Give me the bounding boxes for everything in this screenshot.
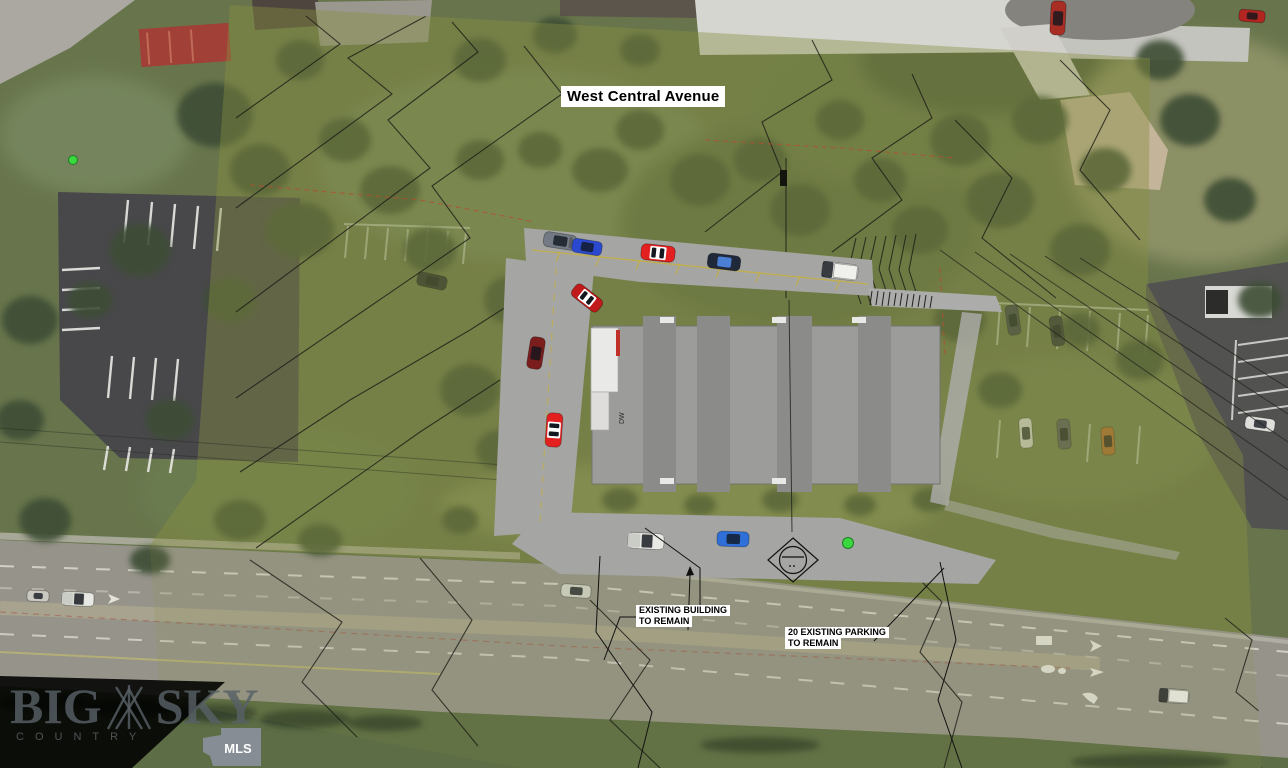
- roof-section-band: [697, 316, 730, 492]
- street-name-label: West Central Avenue: [561, 86, 725, 107]
- aerial-car-red: [1239, 9, 1266, 23]
- road-car-2: [27, 590, 50, 602]
- site-plan-screenshot: DW West Central Avenue EXISTING BUILDING…: [0, 0, 1288, 768]
- site-plan-map: DW: [0, 0, 1288, 768]
- annotation-line: TO REMAIN: [785, 638, 841, 649]
- annotation-line: TO REMAIN: [636, 616, 692, 627]
- building-shadow: [1206, 290, 1228, 314]
- pickup-white: [628, 532, 665, 550]
- car-blue-2: [717, 531, 750, 547]
- red-wall-accent: [616, 330, 620, 356]
- road-truck: [62, 591, 95, 607]
- car-red-vertical: [545, 412, 563, 447]
- roof-section-band: [858, 316, 891, 492]
- car-red-striped: [640, 243, 675, 262]
- building-interior-label: DW: [619, 412, 626, 424]
- post-marker: [780, 170, 787, 186]
- green-marker-west: [69, 156, 78, 165]
- annotation-existing-building: EXISTING BUILDING TO REMAIN: [636, 605, 730, 627]
- roof-section-band: [777, 316, 812, 492]
- green-marker-east: [843, 538, 854, 549]
- dark-roof-2: [560, 0, 700, 18]
- annotation-line: EXISTING BUILDING: [636, 605, 730, 616]
- aerial-truck-red: [1050, 1, 1067, 36]
- roof-section-band: [643, 316, 676, 492]
- annotation-line: 20 EXISTING PARKING: [785, 627, 889, 638]
- annotation-existing-parking: 20 EXISTING PARKING TO REMAIN: [785, 627, 889, 649]
- red-roof-building: [139, 23, 231, 67]
